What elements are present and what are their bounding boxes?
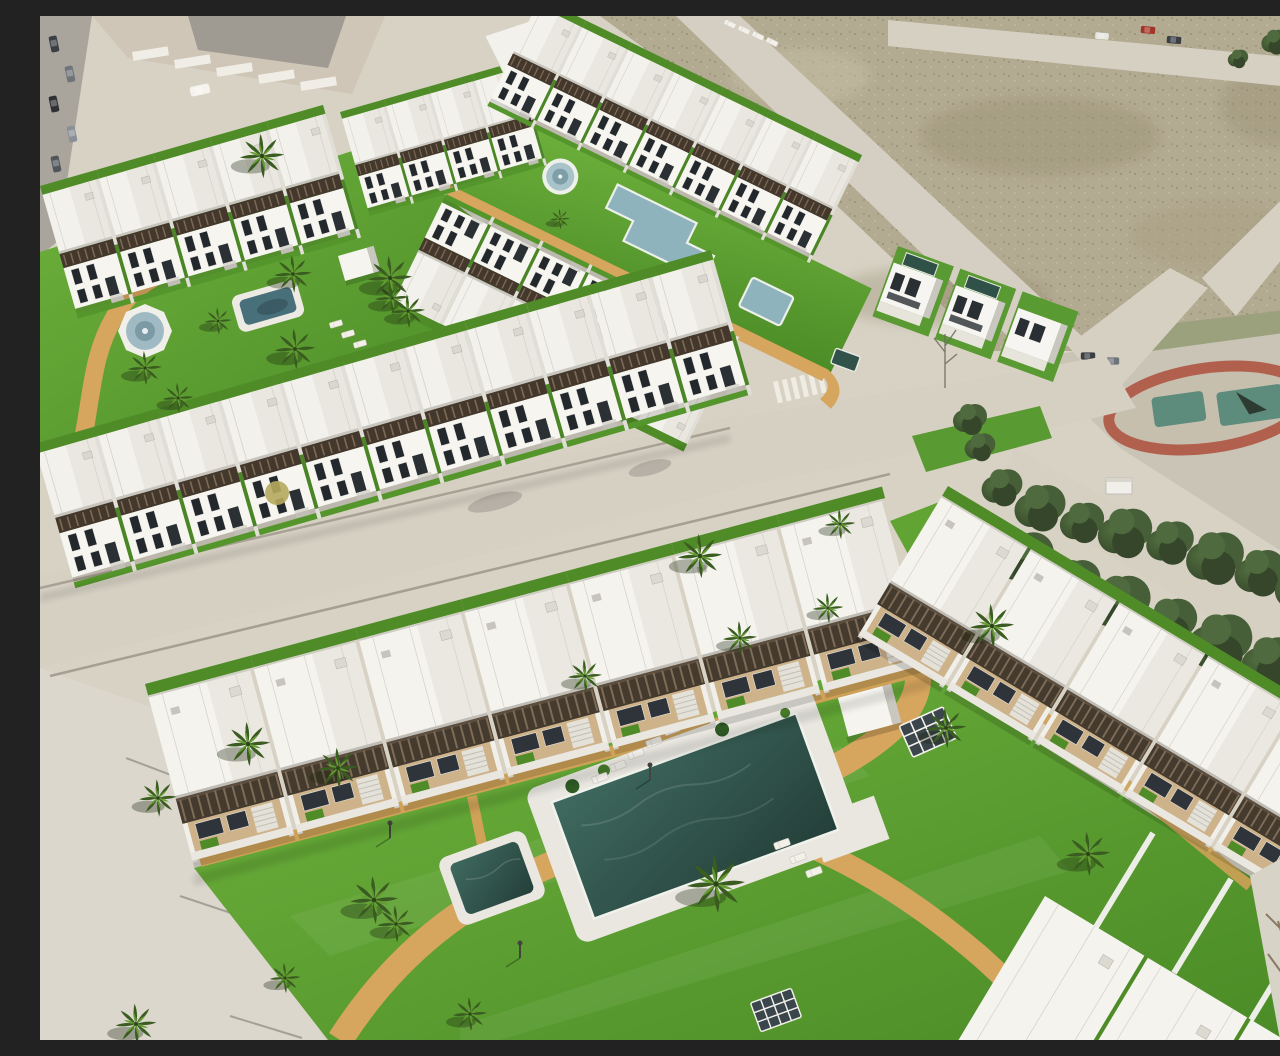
- render-canvas: Aerial 3D architectural render of a whit…: [40, 16, 1280, 1040]
- car: [1095, 32, 1109, 40]
- park-hut: [1106, 478, 1132, 494]
- car: [1167, 36, 1182, 44]
- octagon-fountain: [118, 304, 172, 358]
- street-tree-olive: [265, 481, 289, 505]
- car: [1141, 26, 1156, 34]
- aerial-development-render: Aerial 3D architectural render of a whit…: [40, 16, 1280, 1040]
